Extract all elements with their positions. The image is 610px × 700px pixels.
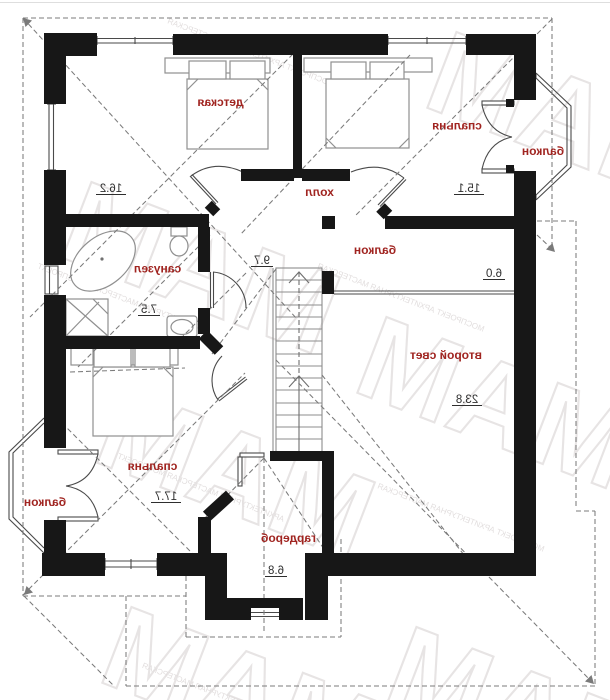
svg-text:9.7: 9.7 — [254, 255, 270, 267]
svg-text:холл: холл — [305, 185, 334, 199]
svg-text:6.8: 6.8 — [268, 565, 284, 577]
svg-text:23.8: 23.8 — [456, 394, 478, 406]
svg-text:16.2: 16.2 — [100, 183, 122, 195]
svg-text:спальня: спальня — [432, 119, 482, 133]
svg-text:17.7: 17.7 — [155, 491, 177, 503]
svg-text:балкон: балкон — [522, 144, 564, 158]
svg-text:балкон: балкон — [354, 243, 396, 257]
svg-text:15.1: 15.1 — [458, 183, 480, 195]
svg-text:детская: детская — [197, 95, 243, 109]
svg-text:6.0: 6.0 — [486, 268, 502, 280]
svg-text:гардероб: гардероб — [261, 531, 316, 545]
svg-text:санузел: санузел — [134, 262, 181, 276]
svg-text:7.5: 7.5 — [141, 304, 157, 316]
svg-text:балкон: балкон — [24, 495, 66, 509]
svg-text:спальня: спальня — [128, 459, 178, 473]
svg-text:второй свет: второй свет — [410, 348, 482, 362]
